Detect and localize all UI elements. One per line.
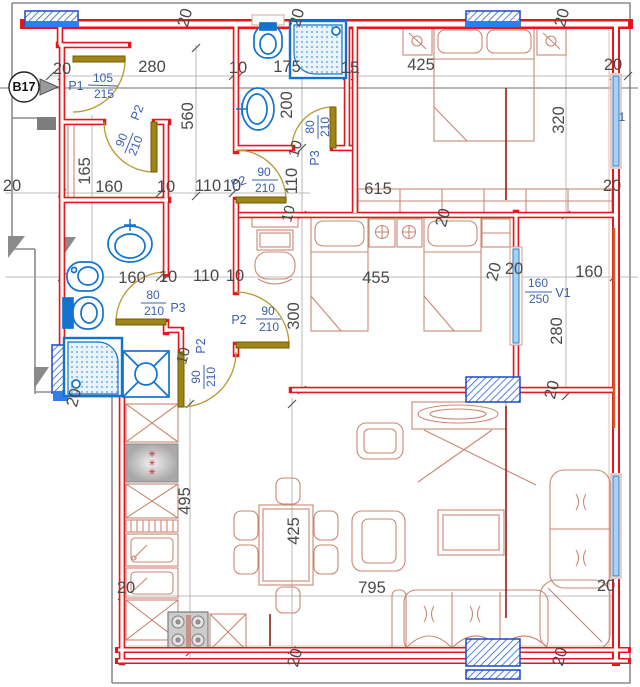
door-id: P2: [128, 103, 147, 122]
nightstand: [403, 27, 432, 55]
wall-jamb-block: [37, 117, 56, 130]
furniture: [62, 26, 612, 652]
dim-label: 280: [138, 58, 166, 76]
dim-label: 200: [278, 91, 296, 119]
stove-mark: ✳: [148, 467, 156, 477]
entrance-arrow-icon: [40, 79, 58, 95]
single-bed: [424, 217, 481, 331]
closet-shelf-lines: [68, 126, 74, 198]
pillar: [466, 639, 520, 666]
stove: ✳ ✳ ✳: [126, 444, 178, 482]
dim-label: 20: [597, 577, 615, 595]
edge-mark-label: 1: [619, 110, 626, 124]
dim-label: 615: [364, 180, 392, 198]
dim-label: 15: [341, 59, 359, 77]
floor-plan-page: ✳ ✳ ✳: [0, 0, 640, 687]
pillar: [466, 670, 520, 679]
dim-label: 10: [159, 268, 177, 286]
door-width: 80: [303, 120, 317, 134]
door-height: 210: [204, 367, 218, 387]
window-width: 160: [528, 276, 548, 290]
dim-label: 10: [229, 59, 247, 77]
bidet: [67, 262, 103, 291]
door-id: P2: [229, 173, 248, 191]
dim-label: 300: [285, 302, 303, 330]
dim-label: 20: [3, 177, 21, 195]
door-width: 80: [146, 288, 160, 302]
window-height: 250: [529, 292, 549, 306]
window-id: V1: [555, 286, 570, 300]
door-height: 215: [94, 87, 114, 101]
door-id: P3: [170, 301, 185, 315]
dim-label: 110: [195, 177, 221, 195]
dim-label: 165: [76, 157, 94, 185]
door-width: 90: [257, 165, 271, 179]
dim-label: 495: [176, 487, 194, 515]
desk-and-chair: [252, 215, 298, 284]
dim-label: 20: [483, 261, 505, 283]
dim-label: 10: [278, 204, 299, 225]
window-label-v1: 160 250 V1: [525, 276, 571, 306]
door-height: 210: [144, 304, 164, 318]
dim-label: 425: [285, 517, 303, 545]
dim-label: 110: [193, 267, 219, 285]
dim-label: 110: [283, 168, 301, 194]
door-id: P3: [308, 150, 322, 165]
door-height: 210: [255, 181, 275, 195]
dim-label: 560: [179, 102, 197, 130]
door-id: P1: [68, 79, 83, 93]
toilet: [252, 15, 284, 58]
door-label-p3-bath2: 80 210 P3: [141, 288, 186, 318]
door-label-p3-bath1: 80 210 P3: [303, 115, 332, 166]
dim-label: 20: [604, 56, 622, 74]
dim-label: 20: [603, 177, 621, 195]
dim-label: 10: [173, 346, 194, 367]
door-height: 210: [259, 320, 279, 334]
door-label-p2-bedroom: 90 210 P2: [229, 165, 278, 195]
dim-label: 20: [117, 579, 135, 597]
nightstand: [537, 27, 566, 55]
double-bed: [434, 26, 534, 141]
door-width: 90: [189, 370, 203, 384]
armchair: [357, 423, 403, 459]
door-label-p2-kitchen: 90 210 P2: [189, 338, 218, 389]
cooktop: [168, 612, 208, 650]
door-width: 90: [261, 304, 275, 318]
dim-label: 280: [548, 317, 566, 345]
nightstand: [397, 219, 422, 247]
dim-label: 10: [157, 178, 175, 196]
entrance-marker: B17: [9, 72, 58, 102]
door-id: P2: [194, 338, 208, 353]
dim-label: 20: [53, 60, 71, 78]
dim-label: 10: [285, 139, 306, 160]
door-id: P2: [231, 313, 246, 327]
tv-unit: [412, 402, 536, 485]
dim-label: 160: [95, 178, 123, 196]
coffee-table: [438, 510, 504, 555]
nightstand: [369, 219, 395, 247]
single-bed: [311, 217, 368, 331]
nightstand: [482, 219, 510, 247]
wardrobe: [358, 189, 612, 213]
section-line: [270, 88, 506, 646]
corner-sofa: [392, 470, 610, 652]
floor-plan-drawing: ✳ ✳ ✳: [0, 0, 640, 687]
door-width: 105: [93, 71, 113, 85]
sink: [108, 219, 152, 262]
dim-label: 20: [505, 260, 523, 278]
door-label-p1: P1 105 215: [68, 71, 118, 101]
dim-label: 320: [550, 106, 568, 134]
dim-label: 10: [226, 267, 244, 285]
shower: [64, 338, 122, 396]
door-height: 210: [318, 117, 332, 137]
door-label-p2-kids: P2 90 210: [231, 304, 281, 334]
sink: [236, 88, 274, 130]
dim-label: 160: [118, 269, 146, 287]
dim-label: 20: [432, 207, 454, 229]
dim-label: 175: [273, 58, 301, 76]
dim-label: 795: [358, 579, 386, 597]
dim-label: 425: [407, 56, 435, 74]
armchair: [352, 511, 405, 571]
toilet: [63, 297, 103, 329]
dim-label: 455: [362, 269, 390, 287]
dim-label: 20: [541, 379, 563, 401]
dim-label: 160: [575, 263, 603, 281]
pillar: [466, 377, 520, 402]
unit-label: B17: [13, 80, 36, 94]
washing-machine: [123, 351, 169, 397]
door-label-p2-closet: 90 210 P2: [111, 103, 147, 159]
